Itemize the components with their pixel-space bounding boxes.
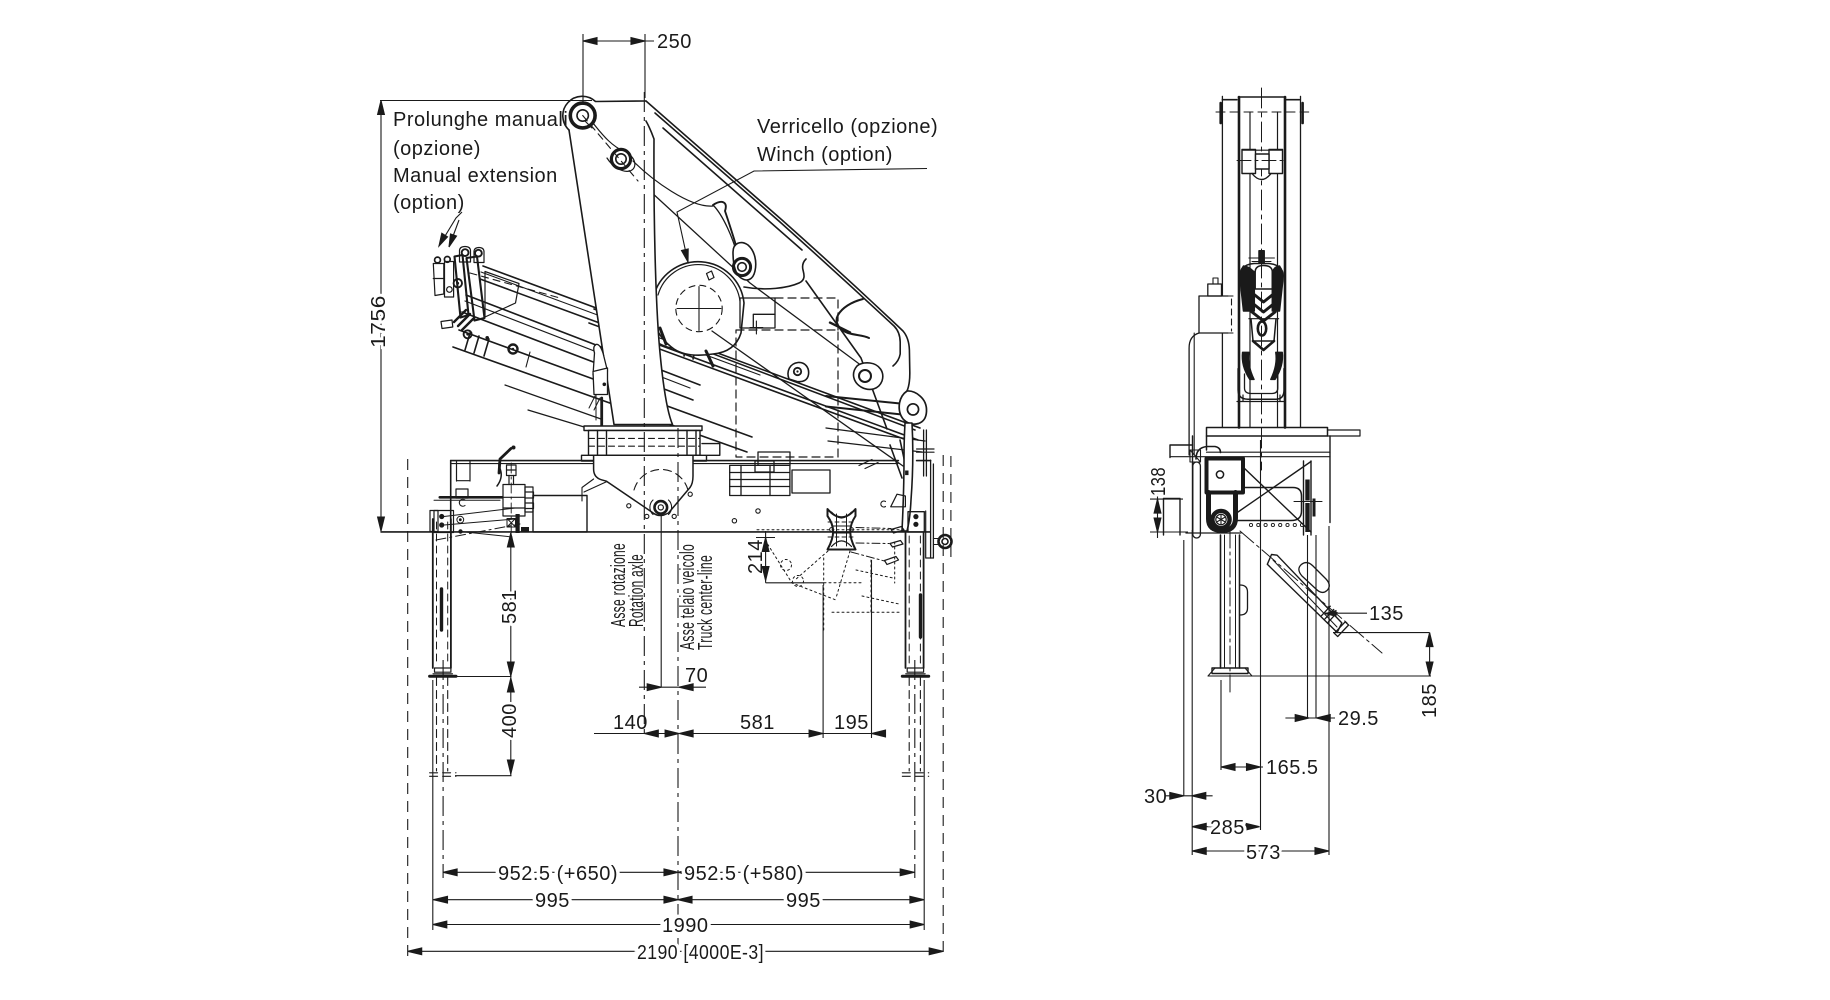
svg-text:573: 573 bbox=[1246, 842, 1281, 864]
svg-text:29.5: 29.5 bbox=[1338, 708, 1379, 730]
svg-text:952.5 (+650): 952.5 (+650) bbox=[498, 863, 618, 885]
svg-text:140: 140 bbox=[613, 712, 648, 734]
svg-text:135: 135 bbox=[1369, 603, 1404, 625]
svg-text:30: 30 bbox=[1144, 786, 1167, 808]
svg-text:Winch (option): Winch (option) bbox=[757, 144, 893, 166]
svg-text:Truck center-line: Truck center-line bbox=[695, 555, 717, 650]
svg-text:Manual extension: Manual extension bbox=[393, 165, 558, 187]
svg-text:195: 195 bbox=[834, 712, 869, 734]
svg-text:285: 285 bbox=[1210, 817, 1245, 839]
svg-text:581: 581 bbox=[740, 712, 775, 734]
svg-text:995: 995 bbox=[535, 890, 570, 912]
svg-text:Verricello (opzione): Verricello (opzione) bbox=[757, 116, 938, 138]
svg-text:250: 250 bbox=[657, 31, 692, 53]
svg-text:70: 70 bbox=[685, 665, 708, 687]
svg-text:2190 [4000E-3]: 2190 [4000E-3] bbox=[637, 942, 764, 964]
svg-text:(opzione): (opzione) bbox=[393, 138, 481, 160]
svg-text:185: 185 bbox=[1419, 683, 1441, 718]
svg-text:Rotation axle: Rotation axle bbox=[626, 554, 648, 627]
svg-text:138: 138 bbox=[1148, 467, 1170, 496]
svg-text:581: 581 bbox=[499, 589, 521, 624]
svg-text:165.5: 165.5 bbox=[1266, 757, 1319, 779]
svg-text:214: 214 bbox=[745, 539, 767, 574]
svg-text:1756: 1756 bbox=[368, 295, 390, 348]
svg-text:995: 995 bbox=[786, 890, 821, 912]
svg-text:1990: 1990 bbox=[662, 915, 709, 937]
svg-text:400: 400 bbox=[499, 703, 521, 738]
svg-text:952.5 (+580): 952.5 (+580) bbox=[684, 863, 804, 885]
svg-text:(option): (option) bbox=[393, 192, 465, 214]
svg-text:Prolunghe manuali: Prolunghe manuali bbox=[393, 109, 568, 131]
